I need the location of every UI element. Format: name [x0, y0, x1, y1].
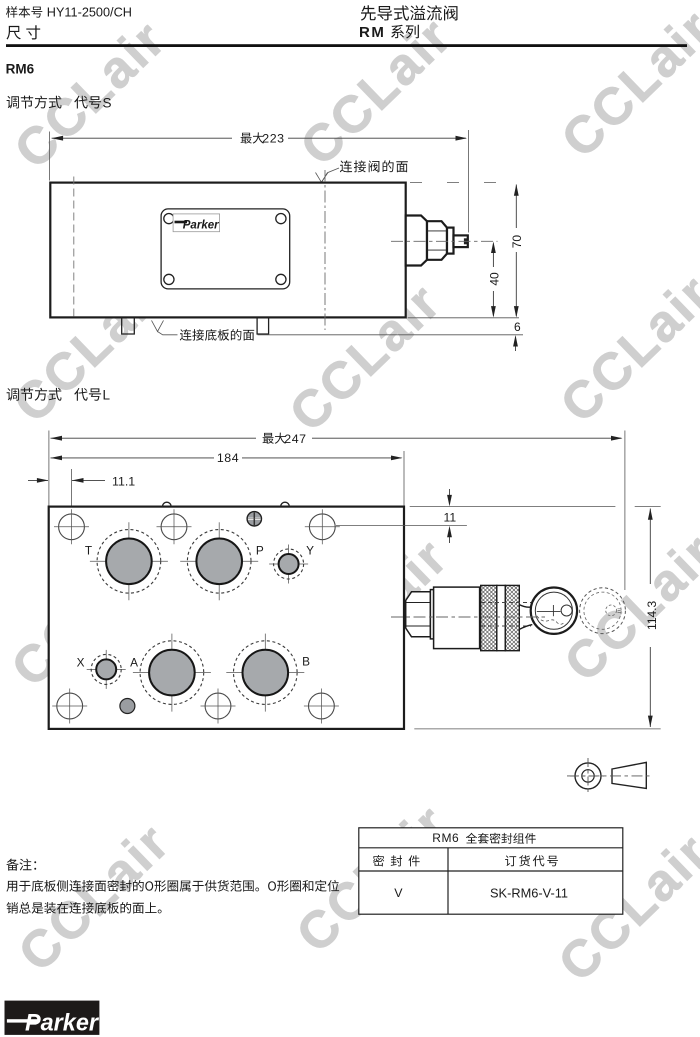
- svg-text:CCLair: CCLair: [551, 0, 700, 169]
- svg-text:T: T: [85, 543, 92, 557]
- svg-text:Y: Y: [306, 543, 314, 557]
- svg-text:P: P: [256, 543, 264, 557]
- svg-text:V: V: [394, 886, 403, 900]
- svg-text:Parker: Parker: [183, 217, 220, 231]
- svg-text:40: 40: [488, 272, 502, 286]
- svg-text:X: X: [77, 655, 85, 669]
- svg-text:S: S: [103, 95, 112, 110]
- svg-text:11: 11: [443, 511, 456, 525]
- svg-text:L: L: [103, 388, 111, 403]
- svg-text:RM6: RM6: [6, 62, 35, 77]
- svg-text:CCLair: CCLair: [8, 812, 182, 983]
- svg-text:11.1: 11.1: [112, 474, 135, 488]
- svg-text:B: B: [302, 654, 310, 668]
- svg-text:RM: RM: [359, 24, 385, 41]
- svg-text:70: 70: [510, 235, 524, 249]
- svg-text:A: A: [130, 655, 138, 669]
- svg-text:223: 223: [262, 132, 284, 146]
- svg-text:RM6: RM6: [432, 831, 459, 845]
- svg-text:CCLair: CCLair: [4, 9, 178, 180]
- svg-text:6: 6: [514, 320, 521, 334]
- svg-text:247: 247: [284, 432, 306, 446]
- svg-text:CCLair: CCLair: [550, 263, 700, 434]
- svg-text:114.3: 114.3: [645, 601, 659, 630]
- svg-text:Parker: Parker: [25, 1010, 100, 1037]
- svg-text:SK-RM6-V-11: SK-RM6-V-11: [490, 885, 568, 900]
- svg-text:HY11-2500/CH: HY11-2500/CH: [47, 6, 132, 20]
- svg-text:184: 184: [217, 451, 239, 465]
